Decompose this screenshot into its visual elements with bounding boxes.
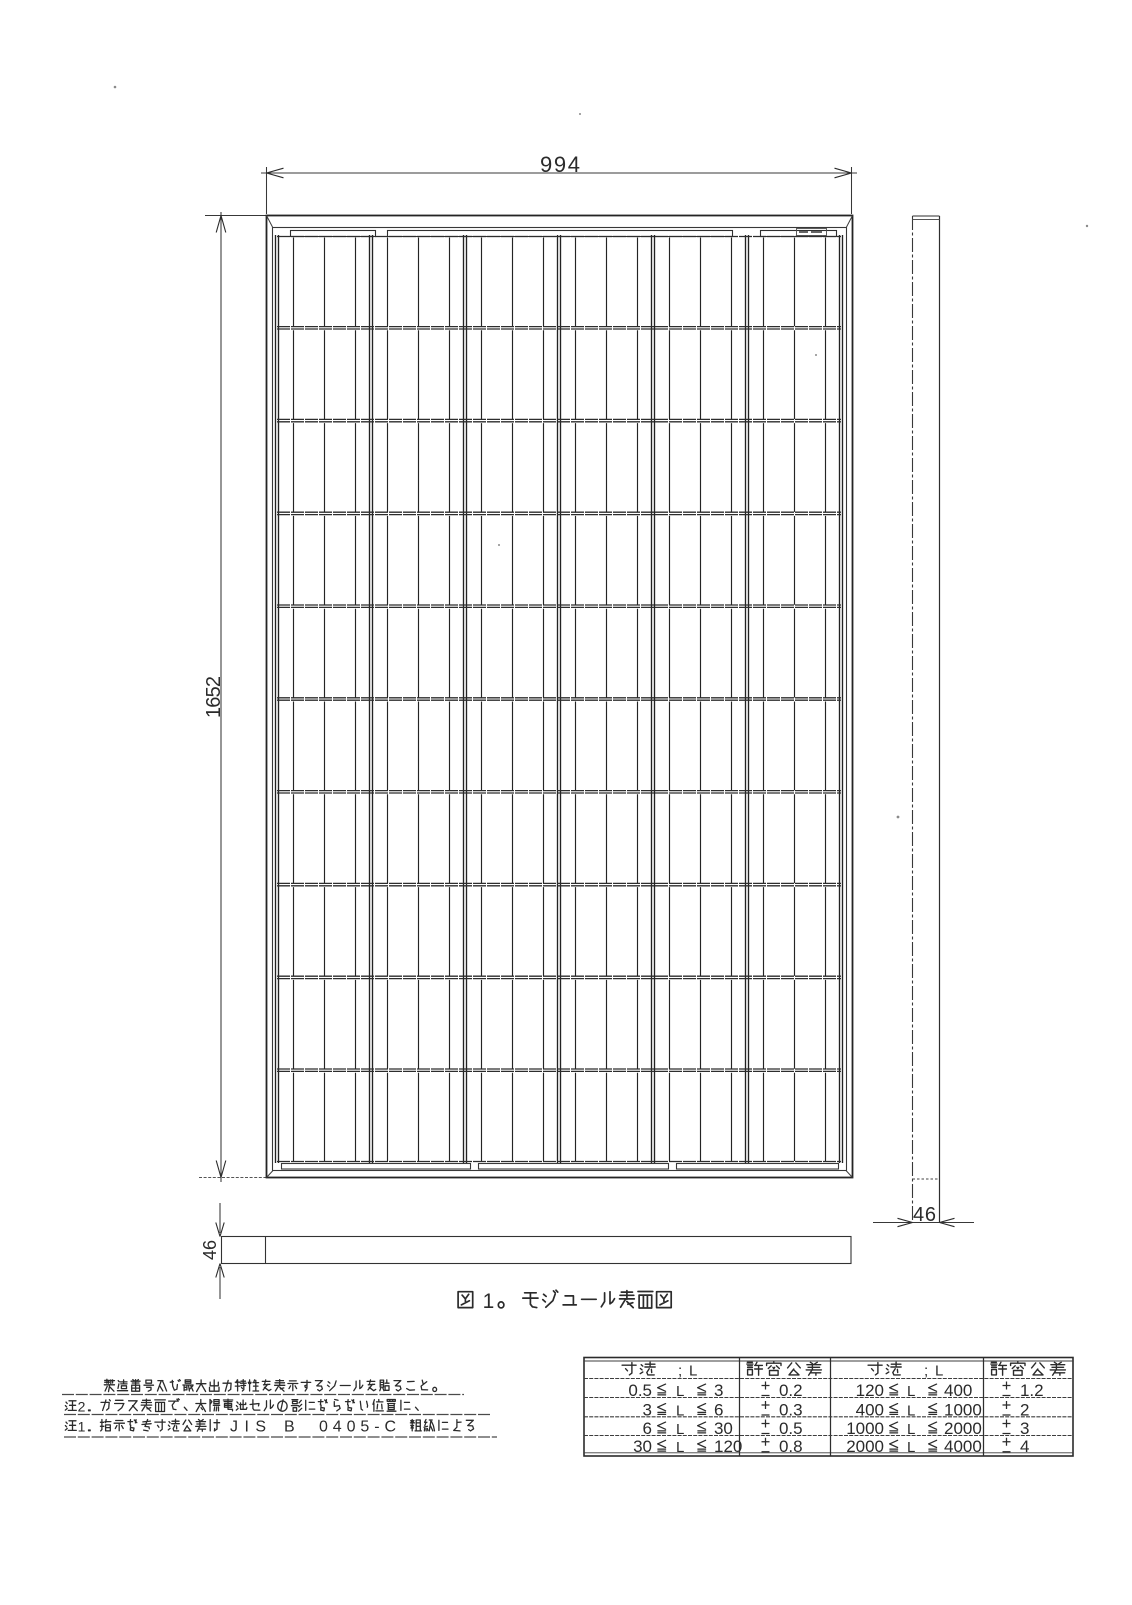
svg-text:2: 2: [1020, 1401, 1029, 1420]
svg-text:400: 400: [856, 1401, 884, 1420]
svg-text:L: L: [907, 1421, 915, 1438]
svg-text:1652: 1652: [203, 676, 225, 718]
svg-text:1: 1: [78, 1419, 86, 1435]
svg-text:;: ;: [678, 1363, 682, 1380]
svg-text:400: 400: [944, 1381, 972, 1400]
svg-text:L: L: [676, 1383, 684, 1400]
svg-text:2000: 2000: [846, 1437, 884, 1456]
svg-text:L: L: [676, 1439, 684, 1456]
svg-text:;: ;: [924, 1363, 928, 1380]
svg-text:0.2: 0.2: [779, 1381, 803, 1400]
svg-text:6: 6: [643, 1419, 652, 1438]
svg-text:1.2: 1.2: [1020, 1381, 1044, 1400]
svg-text:120: 120: [856, 1381, 884, 1400]
svg-text:3: 3: [714, 1381, 723, 1400]
svg-text:L: L: [676, 1403, 684, 1420]
svg-text:L: L: [907, 1403, 915, 1420]
svg-text:30: 30: [633, 1437, 652, 1456]
svg-text:2000: 2000: [944, 1419, 982, 1438]
svg-text:B: B: [284, 1419, 295, 1436]
svg-text:46: 46: [200, 1240, 220, 1260]
svg-text:3: 3: [1020, 1419, 1029, 1438]
svg-text:0.8: 0.8: [779, 1437, 803, 1456]
svg-text:L: L: [907, 1439, 915, 1456]
svg-text:L: L: [907, 1383, 915, 1400]
svg-text:L: L: [935, 1363, 943, 1380]
svg-text:L: L: [676, 1421, 684, 1438]
svg-text:3: 3: [643, 1401, 652, 1420]
svg-text:JIS: JIS: [230, 1419, 266, 1436]
svg-text:0.5: 0.5: [779, 1419, 803, 1438]
svg-text:2: 2: [78, 1399, 86, 1415]
svg-text:0.5: 0.5: [628, 1381, 652, 1400]
svg-text:L: L: [689, 1363, 697, 1380]
svg-text:1: 1: [483, 1290, 495, 1313]
svg-text:6: 6: [714, 1401, 723, 1420]
svg-text:1000: 1000: [944, 1401, 982, 1420]
svg-text:0.3: 0.3: [779, 1401, 803, 1420]
svg-text:30: 30: [714, 1419, 733, 1438]
svg-text:4000: 4000: [944, 1437, 982, 1456]
svg-text:4: 4: [1020, 1437, 1029, 1456]
svg-text:1000: 1000: [846, 1419, 884, 1438]
svg-text:120: 120: [714, 1437, 742, 1456]
